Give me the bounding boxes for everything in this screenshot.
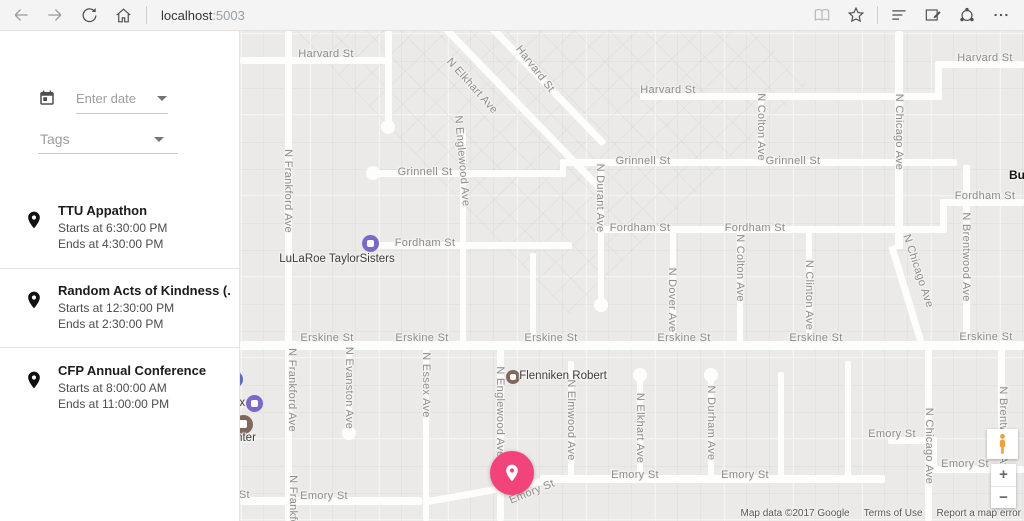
- reading-view-button[interactable]: [805, 0, 839, 31]
- web-note-icon: [923, 5, 943, 25]
- home-button[interactable]: [106, 0, 140, 31]
- map-street: [778, 372, 784, 478]
- chevron-down-icon[interactable]: [157, 96, 167, 101]
- cul-de-sac: [381, 120, 395, 134]
- street-label: N Frankford Ave: [282, 149, 294, 233]
- map-canvas[interactable]: Harvard StN Frankford AveN Elkhart AveHa…: [240, 31, 1024, 521]
- shopping-bag-icon[interactable]: [362, 235, 379, 252]
- street-label: Erskine St: [524, 332, 577, 344]
- street-label: N Evanston Ave: [343, 347, 355, 429]
- event-end: Ends at 2:30:00 PM: [58, 317, 230, 331]
- street-label: N Clinton Ave: [803, 260, 815, 330]
- shopping-bag-icon[interactable]: [246, 395, 263, 412]
- hub-icon: [889, 5, 909, 25]
- refresh-button[interactable]: [72, 0, 106, 31]
- street-label: Fordham St: [395, 237, 455, 249]
- street-label: N Chicago Ave: [893, 94, 905, 170]
- street-label: N Colton Ave: [734, 234, 746, 302]
- street-label: Grinnell St: [616, 155, 671, 167]
- date-input[interactable]: [76, 87, 168, 110]
- home-icon: [114, 6, 133, 25]
- street-label: Erskine St: [300, 332, 353, 344]
- cul-de-sac: [633, 368, 647, 382]
- event-title: CFP Annual Conference: [58, 363, 230, 378]
- cul-de-sac: [366, 166, 380, 180]
- report-map-error-link[interactable]: Report a map error: [937, 508, 1021, 519]
- street-label: Harvard St: [957, 52, 1013, 64]
- street-label: N Frankford Ave: [286, 348, 298, 432]
- street-label: Grinnell St: [766, 155, 821, 167]
- more-icon: [991, 5, 1011, 25]
- street-label: Erskine St: [657, 332, 710, 344]
- event-item[interactable]: TTU Appathon Starts at 6:30:00 PM Ends a…: [0, 195, 240, 261]
- poi-label[interactable]: Flenniken Robert: [519, 370, 607, 382]
- street-label: Emory St: [868, 428, 916, 440]
- location-pin-icon: [24, 367, 44, 393]
- date-underline: [76, 113, 168, 114]
- tags-underline: [38, 153, 178, 154]
- event-divider: [0, 268, 240, 269]
- back-button[interactable]: [4, 0, 38, 31]
- poi-label[interactable]: nter: [240, 432, 256, 444]
- street-label: Fordham St: [725, 222, 785, 234]
- event-item[interactable]: Random Acts of Kindness (... Starts at 1…: [0, 275, 240, 341]
- street-label: Grinnell St: [398, 166, 453, 178]
- map-street: [385, 31, 392, 126]
- event-title: Random Acts of Kindness (...: [58, 283, 230, 298]
- street-label: Erskine St: [395, 332, 448, 344]
- more-button[interactable]: [984, 0, 1018, 31]
- event-divider: [0, 347, 240, 348]
- chevron-down-icon[interactable]: [154, 137, 164, 142]
- event-end: Ends at 4:30:00 PM: [58, 237, 230, 251]
- tags-label: Tags: [40, 131, 70, 147]
- zoom-out-button[interactable]: −: [991, 487, 1016, 509]
- event-start: Starts at 6:30:00 PM: [58, 221, 230, 235]
- poi-label[interactable]: Bu: [1009, 168, 1024, 182]
- street-label: N Colton Ave: [755, 93, 767, 161]
- white-pin-icon: [502, 461, 522, 485]
- toolbar-divider: [877, 6, 878, 24]
- location-pin-icon: [24, 287, 44, 313]
- event-start: Starts at 8:00:00 AM: [58, 381, 230, 395]
- share-button[interactable]: [950, 0, 984, 31]
- forward-icon: [45, 5, 65, 25]
- cul-de-sac: [594, 298, 608, 312]
- street-label: Erskine St: [789, 332, 842, 344]
- street-label: N Chicago Ave: [923, 408, 935, 484]
- street-label: N Durant Ave: [594, 164, 606, 233]
- event-title: TTU Appathon: [58, 203, 230, 218]
- cul-de-sac: [704, 368, 718, 382]
- store-box-icon[interactable]: [240, 415, 253, 434]
- poi-circle-icon[interactable]: [240, 371, 243, 388]
- map-data-credit: Map data ©2017 Google: [740, 508, 849, 519]
- address-host: localhost: [161, 8, 212, 23]
- street-label: Fordham St: [955, 190, 1015, 202]
- event-start: Starts at 12:30:00 PM: [58, 301, 230, 315]
- store-box-icon[interactable]: [506, 370, 520, 384]
- street-label: N Elmwood Ave: [565, 379, 577, 460]
- back-icon: [11, 5, 31, 25]
- terms-of-use-link[interactable]: Terms of Use: [864, 508, 923, 519]
- map-event-marker[interactable]: [490, 451, 534, 495]
- street-label: N Brentwood Ave: [960, 212, 972, 301]
- calendar-icon: [38, 89, 56, 107]
- event-item[interactable]: CFP Annual Conference Starts at 8:00:00 …: [0, 355, 240, 421]
- map-street: [560, 159, 566, 177]
- hub-button[interactable]: [882, 0, 916, 31]
- street-label: N Durham Ave: [705, 386, 717, 461]
- map-street: [940, 199, 947, 233]
- refresh-icon: [80, 6, 99, 25]
- zoom-control: + −: [991, 464, 1016, 508]
- map-street: [845, 361, 851, 478]
- street-label: Emory St: [611, 469, 659, 481]
- favorites-star-icon: [846, 5, 866, 25]
- map-street: [285, 31, 292, 521]
- date-filter: [38, 87, 208, 115]
- location-pin-icon: [24, 207, 44, 233]
- street-label: Emory St: [240, 489, 250, 501]
- poi-label[interactable]: LuLaRoe TaylorSisters: [279, 253, 395, 265]
- share-icon: [957, 5, 977, 25]
- reading-view-icon: [812, 5, 832, 25]
- street-label: Harvard St: [640, 84, 696, 96]
- map-street: [240, 341, 1024, 350]
- map-attribution: Map data ©2017 Google Terms of Use Repor…: [740, 508, 1021, 519]
- zoom-in-button[interactable]: +: [991, 464, 1016, 487]
- forward-button[interactable]: [38, 0, 72, 31]
- street-label: Emory St: [941, 458, 989, 470]
- browser-toolbar: localhost:5003: [0, 0, 1024, 31]
- street-label: N Frankford Ave: [287, 475, 299, 521]
- street-label: Fordham St: [610, 222, 670, 234]
- street-label: N Dover Ave: [666, 268, 678, 333]
- poi-label[interactable]: ox: [240, 397, 245, 409]
- street-label: Harvard St: [298, 48, 354, 60]
- events-sidebar: Tags TTU Appathon Starts at 6:30:00 PM E…: [0, 31, 240, 521]
- map-street: [540, 475, 885, 483]
- web-note-button[interactable]: [916, 0, 950, 31]
- address-bar[interactable]: localhost:5003: [140, 0, 245, 31]
- address-divider: [146, 6, 147, 24]
- address-port: :5003: [212, 8, 245, 23]
- map-street: [530, 253, 536, 343]
- street-label: N Essex Ave: [420, 352, 432, 417]
- tags-filter[interactable]: Tags: [38, 127, 178, 155]
- street-label: N Englewood Ave: [494, 366, 506, 457]
- street-label: Emory St: [300, 490, 348, 502]
- favorites-button[interactable]: [839, 0, 873, 31]
- street-label: Erskine St: [959, 331, 1012, 343]
- street-label: N Elkhart Ave: [634, 393, 646, 463]
- event-end: Ends at 11:00:00 PM: [58, 397, 230, 411]
- pegman-icon: [996, 433, 1009, 455]
- map-street: [935, 61, 942, 100]
- pegman-button[interactable]: [987, 429, 1018, 459]
- street-label: Emory St: [721, 469, 769, 481]
